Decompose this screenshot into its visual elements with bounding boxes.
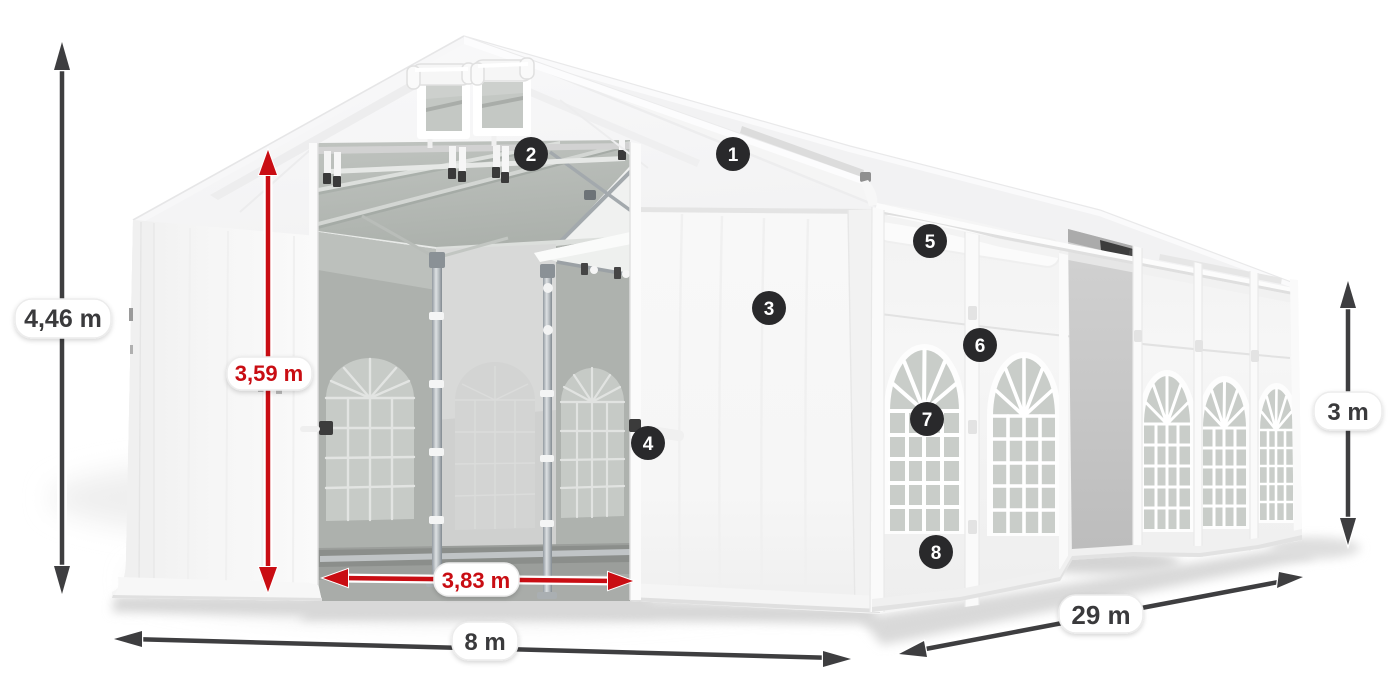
svg-text:4: 4: [643, 434, 654, 455]
svg-text:3: 3: [764, 299, 775, 320]
svg-text:8: 8: [931, 543, 942, 564]
svg-text:1: 1: [728, 145, 739, 166]
svg-text:3,59 m: 3,59 m: [235, 361, 304, 386]
svg-text:3 m: 3 m: [1327, 399, 1368, 426]
svg-text:3,83 m: 3,83 m: [442, 568, 511, 593]
svg-text:6: 6: [975, 336, 986, 357]
svg-text:2: 2: [526, 145, 537, 166]
svg-text:4,46 m: 4,46 m: [24, 305, 102, 333]
svg-text:8 m: 8 m: [464, 629, 505, 656]
svg-text:7: 7: [922, 410, 933, 431]
svg-text:5: 5: [925, 232, 936, 253]
svg-text:29 m: 29 m: [1071, 600, 1130, 630]
